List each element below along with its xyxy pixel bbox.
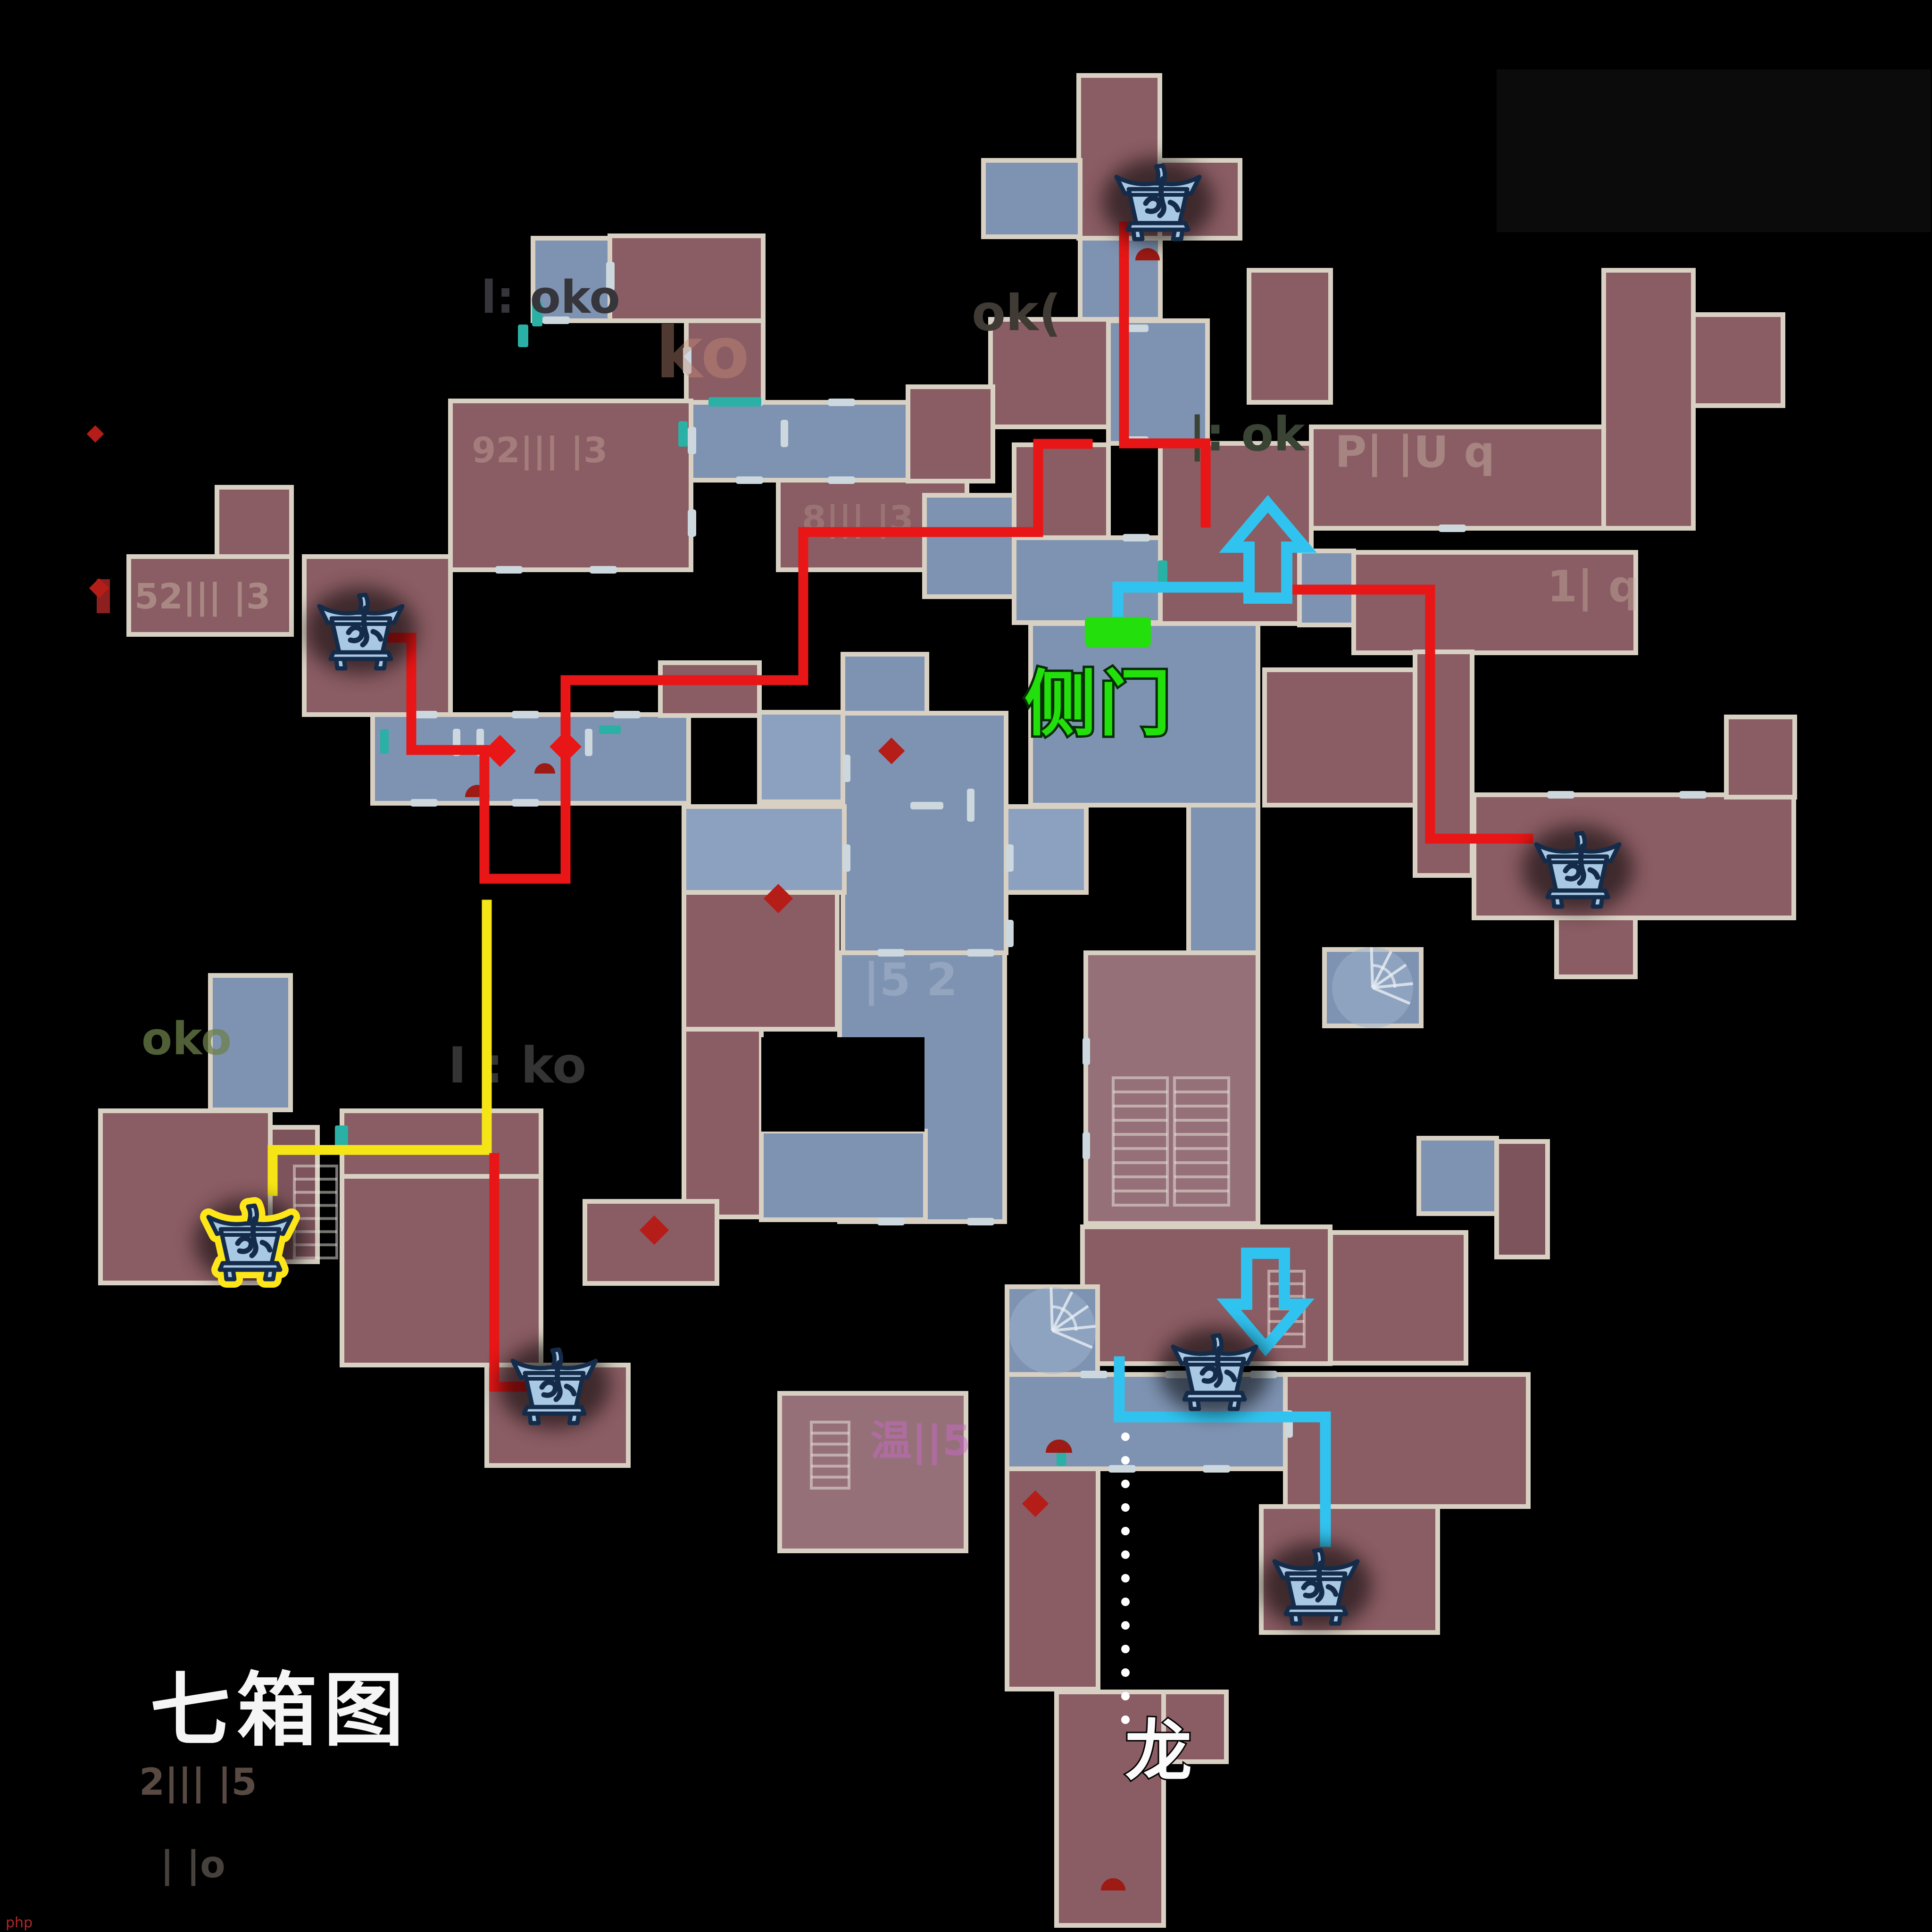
teal-door-marker bbox=[708, 397, 761, 407]
chest-icon bbox=[1522, 825, 1633, 912]
teal-door-marker bbox=[380, 729, 389, 754]
teal-door-marker bbox=[599, 725, 621, 734]
door-tab bbox=[877, 1218, 905, 1225]
door-tab bbox=[590, 566, 617, 574]
door-tab bbox=[1006, 920, 1014, 947]
door-tab bbox=[1203, 1465, 1230, 1473]
door-tab bbox=[828, 476, 855, 484]
door-tab bbox=[410, 799, 438, 807]
room bbox=[1086, 953, 1258, 1224]
dotted-route bbox=[1121, 1692, 1130, 1700]
room bbox=[761, 1131, 925, 1220]
door-tab bbox=[613, 711, 641, 718]
ghost-text: 1| q bbox=[1547, 561, 1640, 612]
dotted-route bbox=[1121, 1621, 1130, 1630]
dark-patch bbox=[1497, 69, 1931, 232]
ghost-text: ok( bbox=[972, 284, 1061, 342]
room bbox=[1497, 1141, 1548, 1257]
room bbox=[1249, 270, 1331, 402]
room bbox=[1474, 795, 1794, 918]
spiral-stairs-icon bbox=[1009, 1287, 1096, 1374]
room bbox=[691, 402, 908, 480]
door-tab bbox=[688, 427, 696, 454]
dotted-route bbox=[1121, 1527, 1130, 1535]
side-door-marker bbox=[1085, 617, 1151, 647]
door-tab bbox=[967, 1218, 994, 1225]
room bbox=[759, 712, 847, 802]
room bbox=[1014, 538, 1160, 623]
ghost-text: oko bbox=[142, 1013, 232, 1065]
teal-door-marker bbox=[1158, 560, 1167, 584]
door-tab bbox=[1123, 534, 1150, 541]
ghost-text: 温||5 bbox=[870, 1416, 971, 1466]
room bbox=[342, 1111, 541, 1177]
room bbox=[908, 387, 993, 481]
map-canvas: ko52||| |392||| |38||| |3P| |U q1| qok(|… bbox=[0, 0, 1932, 1932]
dotted-route bbox=[1121, 1645, 1130, 1653]
door-tab bbox=[910, 802, 943, 809]
room bbox=[684, 1029, 761, 1217]
ghost-text: 92||| |3 bbox=[472, 430, 608, 471]
room bbox=[843, 654, 927, 713]
room bbox=[1693, 315, 1783, 406]
ghost-text: | |o bbox=[160, 1844, 225, 1886]
dotted-route bbox=[1121, 1456, 1130, 1465]
game-map-screenshot: ko52||| |392||| |38||| |3P| |U q1| qok(|… bbox=[0, 0, 1932, 1932]
room bbox=[610, 236, 763, 321]
chest-icon bbox=[1159, 1328, 1270, 1415]
room bbox=[1331, 1232, 1466, 1363]
side-door-label: 侧门 bbox=[1024, 662, 1174, 746]
ghost-text: l: oko bbox=[481, 272, 620, 324]
ghost-text: 52||| |3 bbox=[134, 576, 270, 617]
room bbox=[1604, 270, 1693, 528]
room bbox=[684, 892, 837, 1029]
room bbox=[1007, 1469, 1098, 1689]
door-tab bbox=[1439, 525, 1466, 532]
door-tab bbox=[843, 755, 850, 782]
teal-door-marker bbox=[518, 325, 528, 347]
spiral-stairs-icon bbox=[1332, 947, 1413, 1028]
ghost-text: I : ko bbox=[448, 1037, 586, 1094]
room bbox=[1557, 918, 1635, 977]
room bbox=[1189, 802, 1258, 953]
dragon-label: 龙 bbox=[1125, 1713, 1192, 1790]
room bbox=[660, 663, 759, 716]
room bbox=[373, 715, 689, 803]
map-hole bbox=[761, 1037, 924, 1132]
door-tab bbox=[1083, 1132, 1090, 1159]
chest-icon bbox=[1260, 1542, 1372, 1629]
door-tab bbox=[512, 799, 539, 807]
ghost-text: ko bbox=[656, 312, 749, 394]
chest-icon bbox=[305, 587, 416, 674]
map-title: 七箱图 bbox=[150, 1664, 410, 1757]
dotted-route bbox=[1121, 1480, 1130, 1488]
door-tab bbox=[512, 711, 539, 718]
room bbox=[843, 713, 1006, 953]
room bbox=[1419, 1138, 1497, 1214]
map-generated-layers: ko52||| |392||| |38||| |3P| |U q1| qok(|… bbox=[0, 0, 1932, 1932]
door-tab bbox=[688, 509, 696, 537]
door-tab bbox=[1108, 1465, 1136, 1473]
teal-door-marker bbox=[678, 421, 688, 447]
room bbox=[450, 401, 691, 570]
dotted-route bbox=[1121, 1503, 1130, 1512]
room bbox=[1726, 717, 1795, 797]
ghost-text: P| |U q bbox=[1335, 427, 1495, 477]
chest-icon bbox=[499, 1342, 610, 1429]
dotted-route bbox=[1121, 1432, 1130, 1441]
stairs-texture bbox=[811, 1422, 849, 1488]
room bbox=[585, 1201, 717, 1283]
door-tab bbox=[495, 566, 523, 574]
door-tab bbox=[1547, 791, 1574, 799]
door-tab bbox=[1080, 1371, 1108, 1378]
ghost-text: 2||| |5 bbox=[139, 1761, 257, 1804]
door-tab bbox=[967, 949, 994, 957]
door-tab bbox=[828, 399, 855, 406]
dotted-route bbox=[1121, 1550, 1130, 1559]
chest-icon bbox=[1102, 158, 1214, 245]
room bbox=[924, 495, 1014, 597]
room bbox=[1006, 807, 1086, 892]
door-tab bbox=[967, 789, 974, 822]
door-tab bbox=[1083, 1038, 1090, 1065]
room bbox=[983, 160, 1080, 237]
door-tab bbox=[1006, 844, 1014, 872]
watermark: php bbox=[6, 1915, 33, 1931]
dotted-route bbox=[1121, 1574, 1130, 1582]
dotted-route bbox=[1121, 1668, 1130, 1677]
room bbox=[684, 807, 844, 892]
chest-icon-highlighted bbox=[194, 1198, 306, 1285]
door-tab bbox=[843, 844, 850, 872]
room bbox=[1014, 445, 1108, 538]
room bbox=[342, 1176, 541, 1365]
door-tab bbox=[736, 476, 763, 484]
door-tab bbox=[781, 420, 788, 447]
ghost-text: |5 2 bbox=[863, 954, 958, 1006]
dotted-route bbox=[1121, 1598, 1130, 1606]
door-tab bbox=[585, 729, 592, 756]
door-tab bbox=[1679, 791, 1707, 799]
